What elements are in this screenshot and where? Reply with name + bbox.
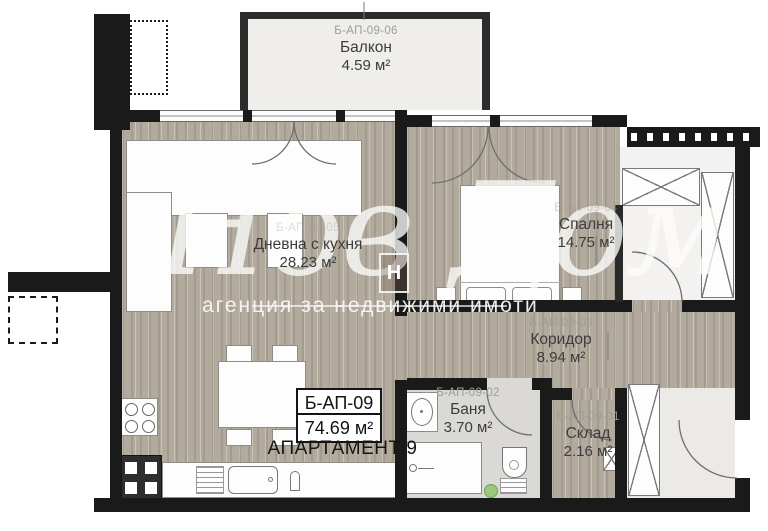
bedroom-label: Б-АП-09-04 Спалня 14.75 м²: [486, 202, 686, 252]
balcony-code: Б-АП-09-06: [266, 25, 466, 39]
storage-name: Склад: [523, 425, 653, 443]
living-room-name: Дневна с кухня: [208, 236, 408, 254]
apartment-total-area: 74.69 м²: [305, 418, 373, 439]
balcony-area: 4.59 м²: [266, 57, 466, 75]
corridor-area: 8.94 м²: [461, 349, 661, 367]
balcony-name: Балкон: [266, 39, 466, 57]
bedroom-area: 14.75 м²: [486, 234, 686, 252]
living-room-code: Б-АП-09-05: [208, 222, 408, 236]
living-room-area: 28.23 м²: [208, 254, 408, 272]
corridor-code: Б-АП-09-03: [461, 317, 661, 331]
watermark-underline: [252, 305, 507, 307]
balcony-label: Б-АП-09-06 Балкон 4.59 м²: [266, 25, 466, 75]
bedroom-name: Спалня: [486, 216, 686, 234]
corridor-label: Б-АП-09-03 Коридор 8.94 м²: [461, 317, 661, 367]
corridor-name: Коридор: [461, 331, 661, 349]
living-room-label: Б-АП-09-05 Дневна с кухня 28.23 м²: [208, 222, 408, 272]
storage-label: Б-АП-09-01 Склад 2.16 м²: [523, 411, 653, 461]
floor-plan: Нов Дом Н агенция за недвижими имоти Б-А…: [0, 0, 768, 531]
apartment-title: АПАРТАМЕНТ 9: [250, 438, 435, 460]
storage-code: Б-АП-09-01: [523, 411, 653, 425]
apartment-code: Б-АП-09: [305, 393, 374, 414]
bedroom-code: Б-АП-09-04: [486, 202, 686, 216]
storage-area: 2.16 м²: [523, 443, 653, 461]
bathroom-code: Б-АП-09-02: [388, 387, 548, 401]
